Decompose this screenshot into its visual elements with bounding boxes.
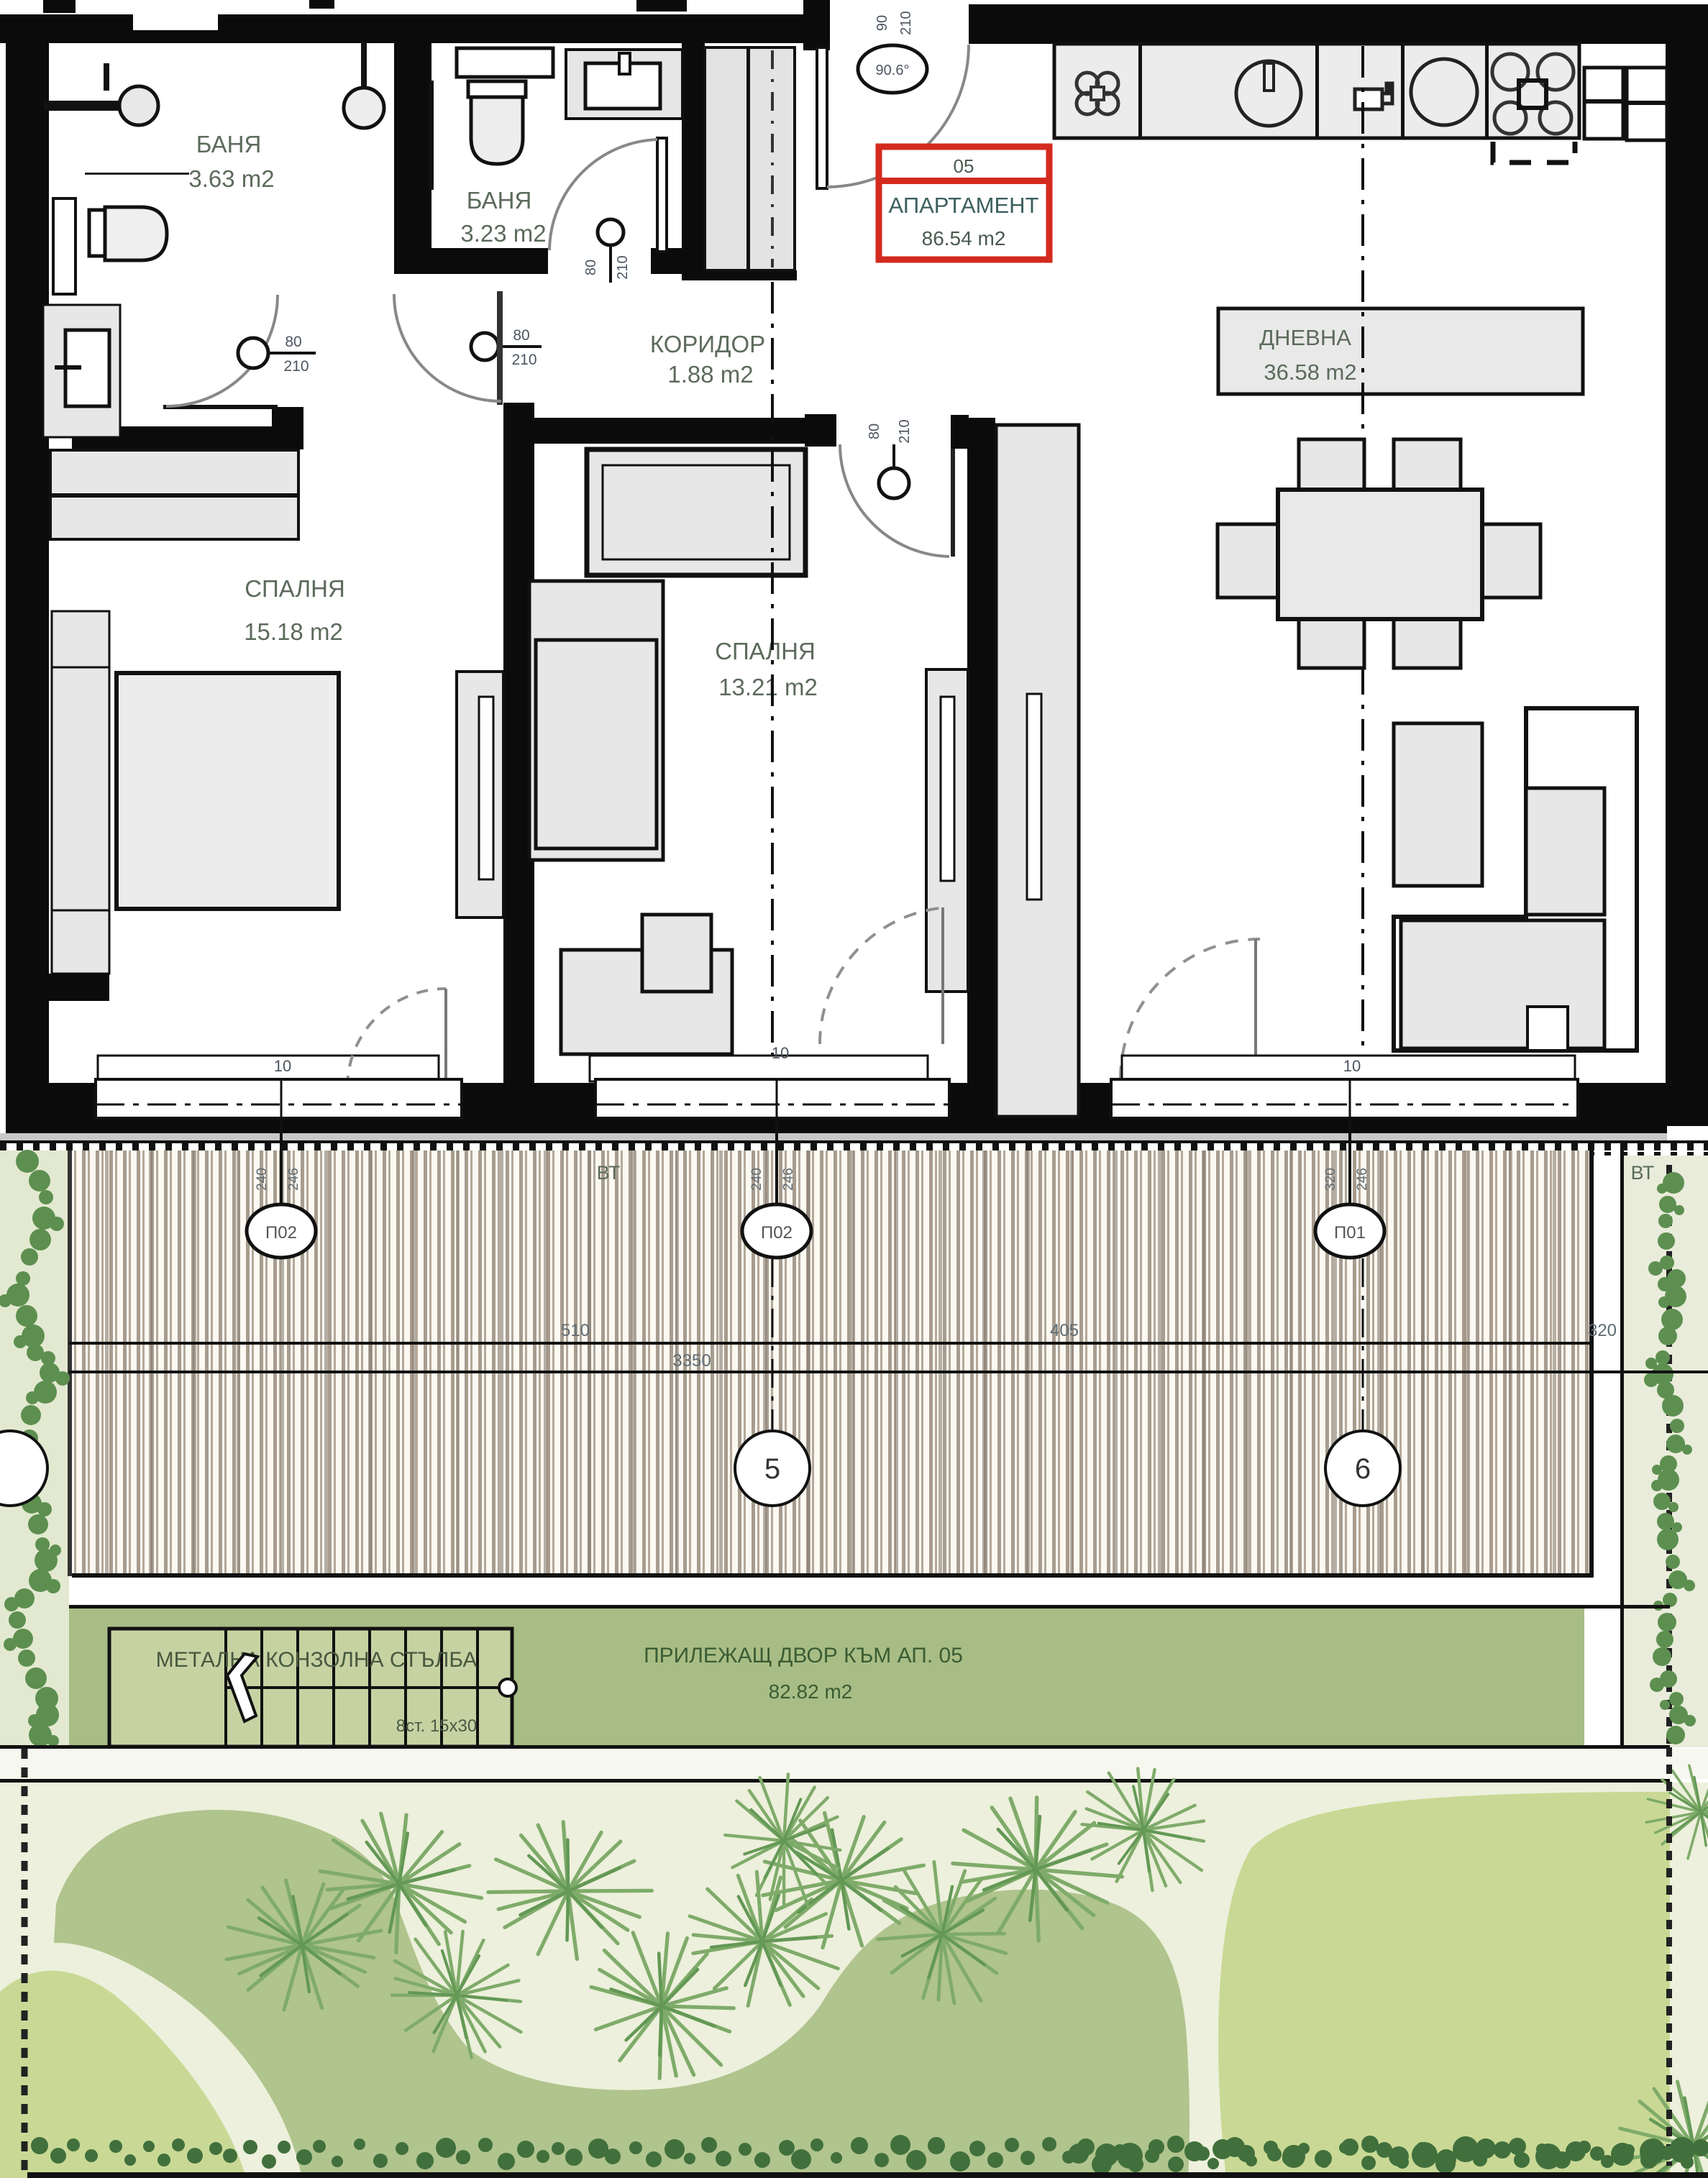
svg-text:320: 320 <box>1323 1168 1338 1191</box>
svg-text:86.54 m2: 86.54 m2 <box>922 227 1006 250</box>
svg-text:6: 6 <box>1355 1453 1371 1485</box>
svg-text:П01: П01 <box>1334 1223 1366 1243</box>
svg-text:3.23 m2: 3.23 m2 <box>460 220 546 247</box>
svg-text:82.82 m2: 82.82 m2 <box>769 1680 853 1703</box>
svg-text:246: 246 <box>286 1168 301 1191</box>
svg-text:80: 80 <box>285 334 301 350</box>
svg-text:246: 246 <box>1355 1168 1370 1191</box>
svg-text:8ст. 15x30: 8ст. 15x30 <box>396 1716 477 1736</box>
svg-text:90.6°: 90.6° <box>876 63 910 78</box>
svg-text:210: 210 <box>511 352 536 368</box>
svg-text:3350: 3350 <box>672 1351 711 1371</box>
svg-text:320: 320 <box>1588 1321 1617 1340</box>
svg-text:246: 246 <box>781 1168 796 1191</box>
svg-text:МЕТАЛНА КОНЗОЛНА СТЪЛБА: МЕТАЛНА КОНЗОЛНА СТЪЛБА <box>156 1648 478 1672</box>
svg-text:80: 80 <box>513 327 529 344</box>
svg-text:80: 80 <box>867 424 882 439</box>
svg-text:05: 05 <box>954 155 974 177</box>
svg-text:210: 210 <box>283 358 309 375</box>
svg-text:10: 10 <box>274 1057 291 1075</box>
svg-text:210: 210 <box>615 255 631 279</box>
svg-text:ВТ: ВТ <box>1631 1162 1655 1184</box>
svg-text:405: 405 <box>1050 1321 1079 1340</box>
svg-text:АПАРТАМЕНТ: АПАРТАМЕНТ <box>889 193 1039 218</box>
svg-text:П02: П02 <box>761 1223 793 1243</box>
svg-text:15.18 m2: 15.18 m2 <box>244 618 343 645</box>
svg-text:10: 10 <box>772 1044 789 1062</box>
svg-text:ВТ: ВТ <box>597 1162 621 1184</box>
svg-text:1.88 m2: 1.88 m2 <box>667 361 753 388</box>
svg-text:36.58 m2: 36.58 m2 <box>1264 360 1356 385</box>
svg-text:СПАЛНЯ: СПАЛНЯ <box>715 638 816 664</box>
svg-text:90: 90 <box>874 15 890 31</box>
svg-text:ДНЕВНА: ДНЕВНА <box>1259 325 1351 350</box>
svg-text:210: 210 <box>898 11 914 35</box>
svg-text:240: 240 <box>749 1168 764 1191</box>
svg-text:5: 5 <box>764 1453 780 1485</box>
svg-text:БАНЯ: БАНЯ <box>467 187 532 214</box>
svg-text:13.21 m2: 13.21 m2 <box>718 674 818 700</box>
svg-text:П02: П02 <box>265 1223 297 1243</box>
svg-text:ПРИЛЕЖАЩ ДВОР КЪМ АП. 05: ПРИЛЕЖАЩ ДВОР КЪМ АП. 05 <box>644 1644 963 1667</box>
svg-text:КОРИДОР: КОРИДОР <box>650 331 765 357</box>
svg-text:БАНЯ: БАНЯ <box>196 131 262 157</box>
svg-text:80: 80 <box>583 260 599 275</box>
svg-text:10: 10 <box>1343 1057 1361 1075</box>
svg-text:СПАЛНЯ: СПАЛНЯ <box>245 575 345 602</box>
svg-text:240: 240 <box>255 1168 270 1191</box>
svg-text:510: 510 <box>561 1321 590 1340</box>
svg-text:3.63 m2: 3.63 m2 <box>188 165 274 192</box>
svg-text:210: 210 <box>897 419 913 443</box>
